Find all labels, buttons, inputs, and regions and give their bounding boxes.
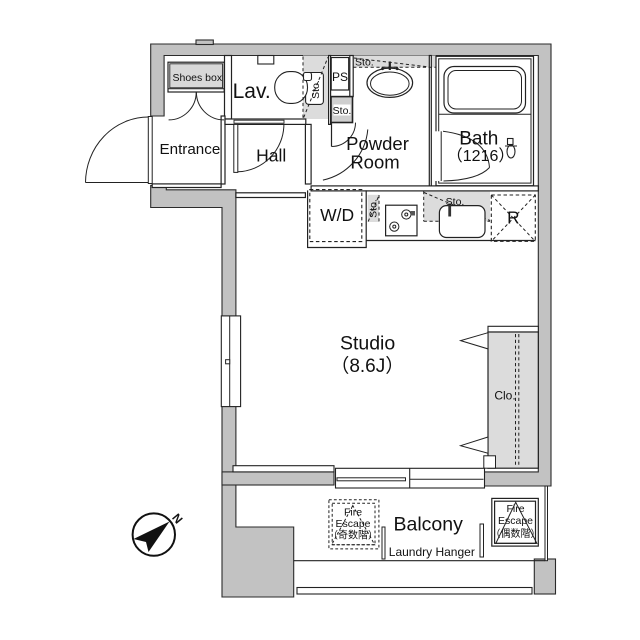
svg-text:Sto.: Sto. <box>355 57 374 69</box>
svg-text:Sto.: Sto. <box>333 105 352 117</box>
svg-text:Laundry Hanger: Laundry Hanger <box>389 545 475 559</box>
svg-text:Hall: Hall <box>256 145 286 165</box>
svg-text:R: R <box>507 208 519 228</box>
svg-text:PS: PS <box>332 70 348 84</box>
svg-text:Sto.: Sto. <box>446 196 465 208</box>
svg-text:Escape: Escape <box>335 518 370 530</box>
svg-text:（8.6J）: （8.6J） <box>330 355 404 377</box>
svg-text:Entrance: Entrance <box>160 141 221 158</box>
svg-text:Shoes box: Shoes box <box>172 72 222 84</box>
svg-text:Fire: Fire <box>344 507 362 519</box>
svg-text:Sto.: Sto. <box>368 199 380 218</box>
svg-text:W/D: W/D <box>320 205 354 225</box>
svg-text:（1216）: （1216） <box>447 147 515 165</box>
svg-text:Room: Room <box>350 152 399 173</box>
svg-text:（奇数階）: （奇数階） <box>328 529 378 542</box>
svg-text:Fire: Fire <box>506 503 524 515</box>
svg-text:Clo.: Clo. <box>494 389 515 403</box>
svg-text:（偶数階）: （偶数階） <box>491 527 541 540</box>
svg-text:Studio: Studio <box>340 333 395 355</box>
svg-text:Bath: Bath <box>459 129 498 150</box>
svg-text:Balcony: Balcony <box>394 514 464 536</box>
svg-text:Sto.: Sto. <box>310 80 322 99</box>
svg-text:Escape: Escape <box>498 515 533 527</box>
svg-text:Lav.: Lav. <box>233 80 271 103</box>
